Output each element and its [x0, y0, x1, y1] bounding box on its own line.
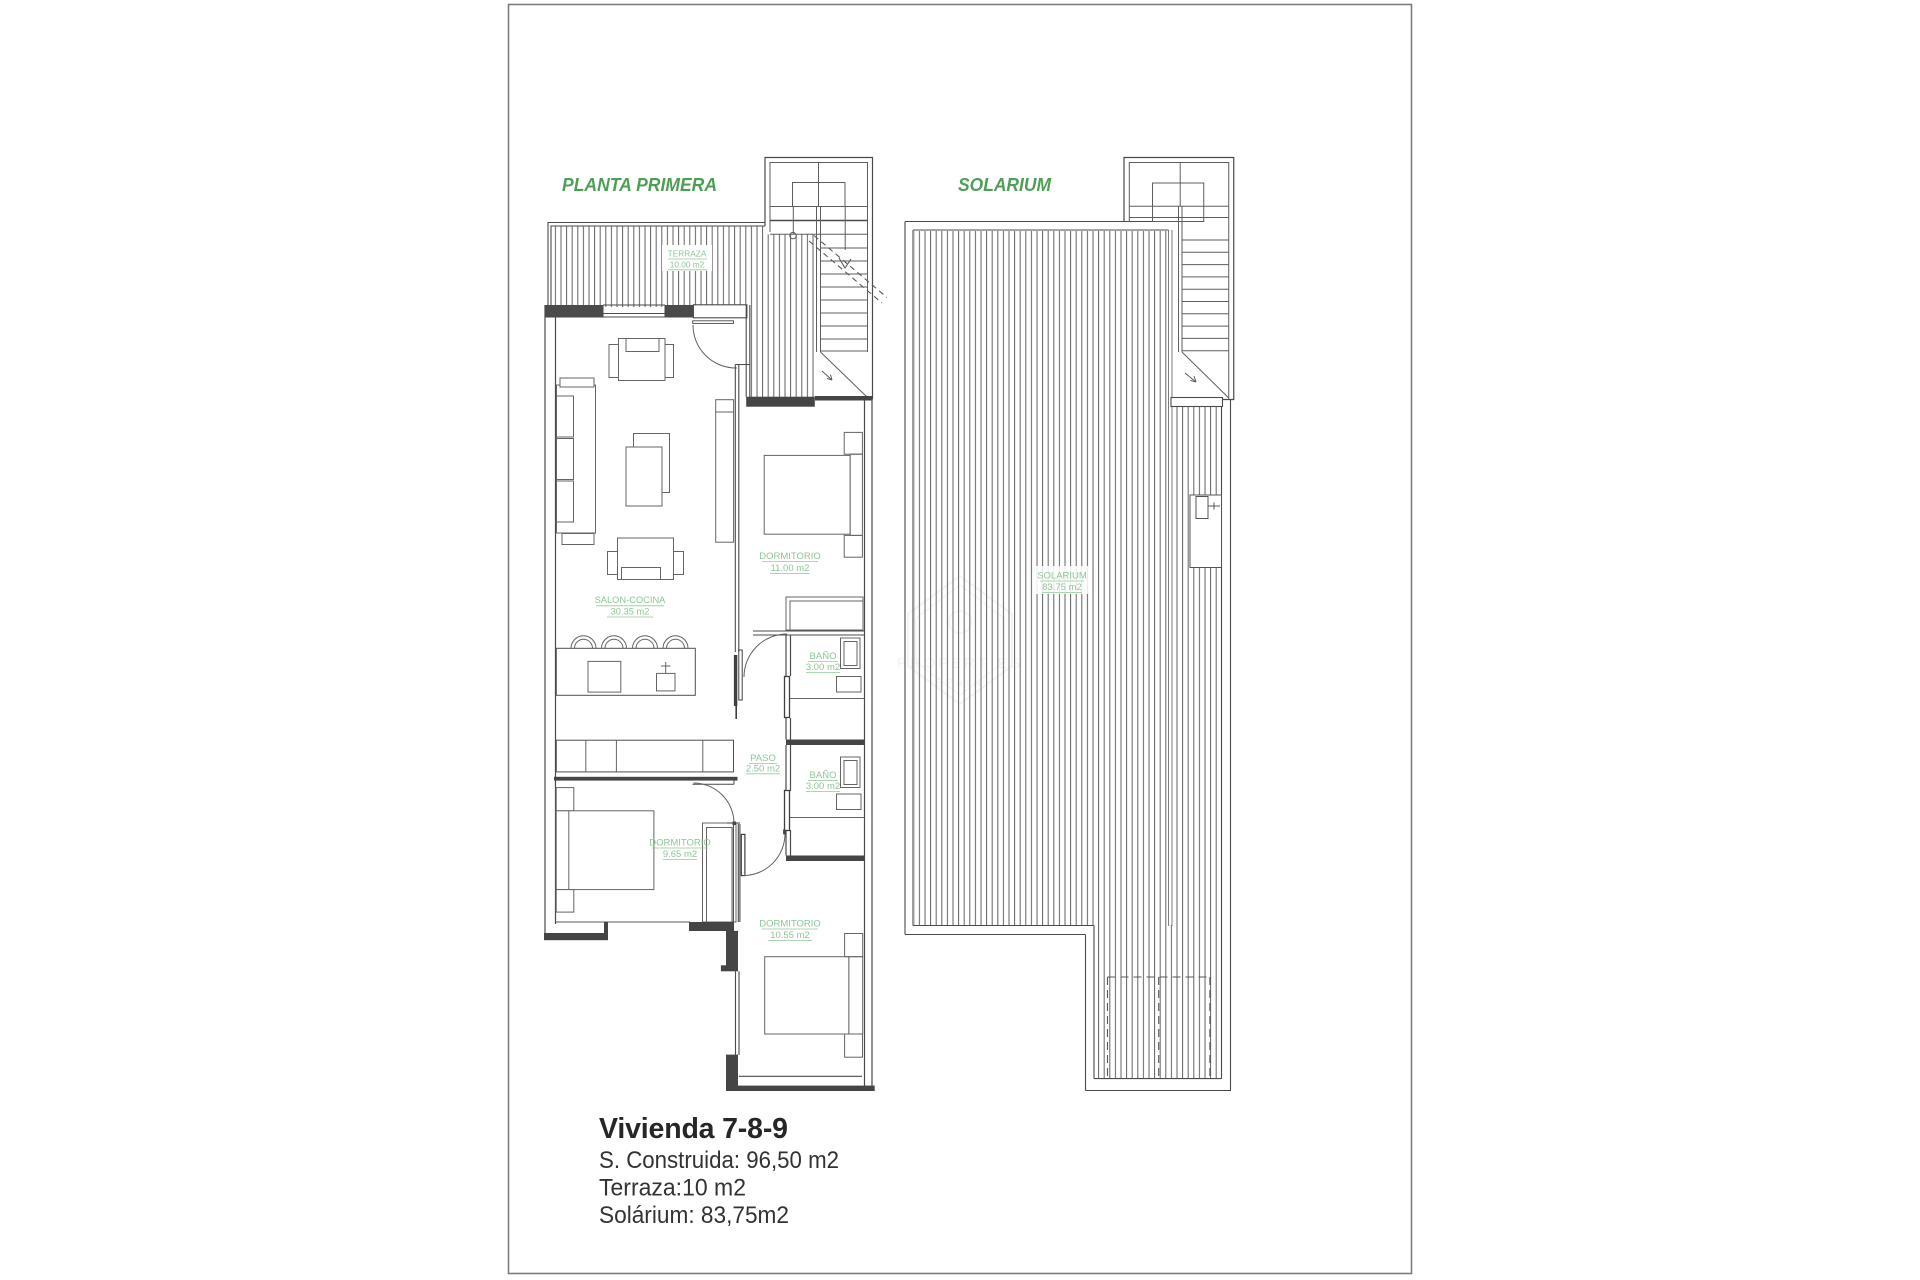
svg-text:DORMITORIO: DORMITORIO — [759, 919, 821, 930]
svg-text:3.00 m2: 3.00 m2 — [806, 781, 840, 792]
svg-text:DORMITORIO: DORMITORIO — [759, 551, 821, 562]
svg-text:BAÑO: BAÑO — [810, 651, 837, 662]
svg-text:11.00 m2: 11.00 m2 — [771, 563, 810, 574]
svg-text:S. Construida: 96,50 m2: S. Construida: 96,50 m2 — [599, 1147, 839, 1174]
svg-text:SALON-COCINA: SALON-COCINA — [595, 595, 667, 605]
svg-text:BAÑO: BAÑO — [810, 770, 837, 781]
svg-text:9.65 m2: 9.65 m2 — [663, 849, 697, 860]
svg-text:83.75 m2: 83.75 m2 — [1042, 582, 1082, 593]
svg-text:SPAIN: SPAIN — [935, 678, 984, 689]
svg-text:2.50 m2: 2.50 m2 — [746, 764, 780, 775]
svg-text:10.00 m2: 10.00 m2 — [670, 260, 705, 270]
svg-text:3.00 m2: 3.00 m2 — [806, 662, 840, 673]
svg-text:PROPERTIES: PROPERTIES — [897, 655, 1023, 672]
svg-text:DORMITORIO: DORMITORIO — [649, 838, 711, 849]
svg-text:SOLARIUM: SOLARIUM — [958, 174, 1052, 195]
svg-text:Solárium: 83,75m2: Solárium: 83,75m2 — [599, 1202, 789, 1229]
svg-text:10.55 m2: 10.55 m2 — [770, 930, 810, 941]
svg-text:30.35 m2: 30.35 m2 — [611, 607, 650, 617]
svg-text:Vivienda 7-8-9: Vivienda 7-8-9 — [599, 1113, 788, 1145]
svg-text:Terraza:10 m2: Terraza:10 m2 — [599, 1175, 746, 1202]
svg-text:PLANTA PRIMERA: PLANTA PRIMERA — [562, 174, 717, 195]
svg-text:SOLARIUM: SOLARIUM — [1037, 571, 1087, 582]
svg-text:TERRAZA: TERRAZA — [668, 249, 707, 259]
svg-text:PASO: PASO — [750, 753, 776, 764]
